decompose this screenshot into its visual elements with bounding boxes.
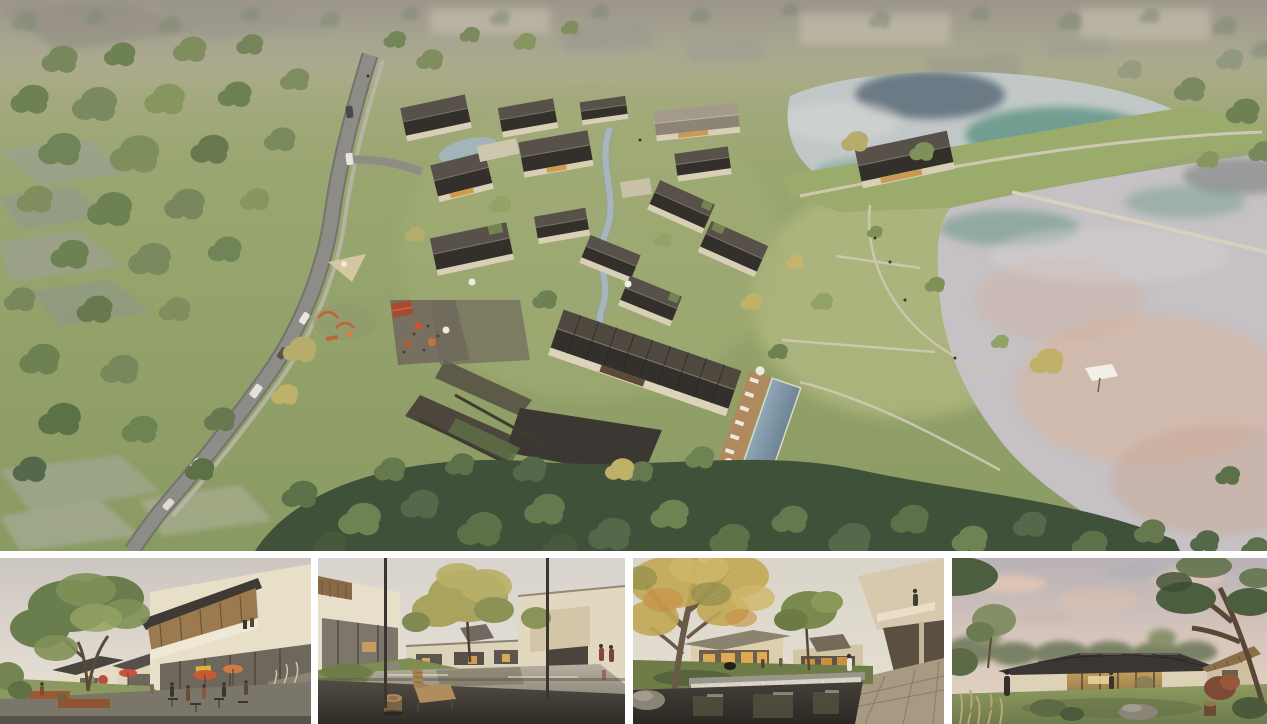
- person-red-coat: [599, 648, 604, 661]
- shrub: [1232, 697, 1267, 719]
- porch-column: [384, 558, 387, 708]
- thumbnail-courtyard-pond: [318, 558, 625, 724]
- courtyard-pond-canvas: [318, 558, 625, 724]
- thumbnail-street-cafe: [0, 558, 311, 724]
- umbrella: [405, 341, 412, 348]
- person-brown-coat: [609, 649, 614, 662]
- aerial-render-canvas: [0, 0, 1267, 551]
- standing-person: [1004, 669, 1010, 696]
- aerial-render: [0, 0, 1267, 551]
- person-white: [847, 658, 852, 671]
- umbrella: [428, 338, 436, 346]
- thumbnail-lakeside-pavilion: [952, 558, 1267, 724]
- small-tree: [402, 612, 430, 632]
- left-house: [318, 576, 400, 674]
- porch-column: [546, 558, 549, 698]
- umbrella: [414, 322, 422, 330]
- seated-person: [724, 662, 736, 670]
- umbrella: [443, 327, 450, 334]
- balcony-person: [913, 594, 918, 606]
- thumbnail-water-court: [633, 558, 944, 724]
- rock: [387, 662, 401, 670]
- water-court-canvas: [633, 558, 944, 724]
- render-board: [0, 0, 1267, 724]
- street-cafe-canvas: [0, 558, 311, 724]
- lakeside-pavilion-canvas: [952, 558, 1267, 724]
- corten-planter: [58, 699, 110, 708]
